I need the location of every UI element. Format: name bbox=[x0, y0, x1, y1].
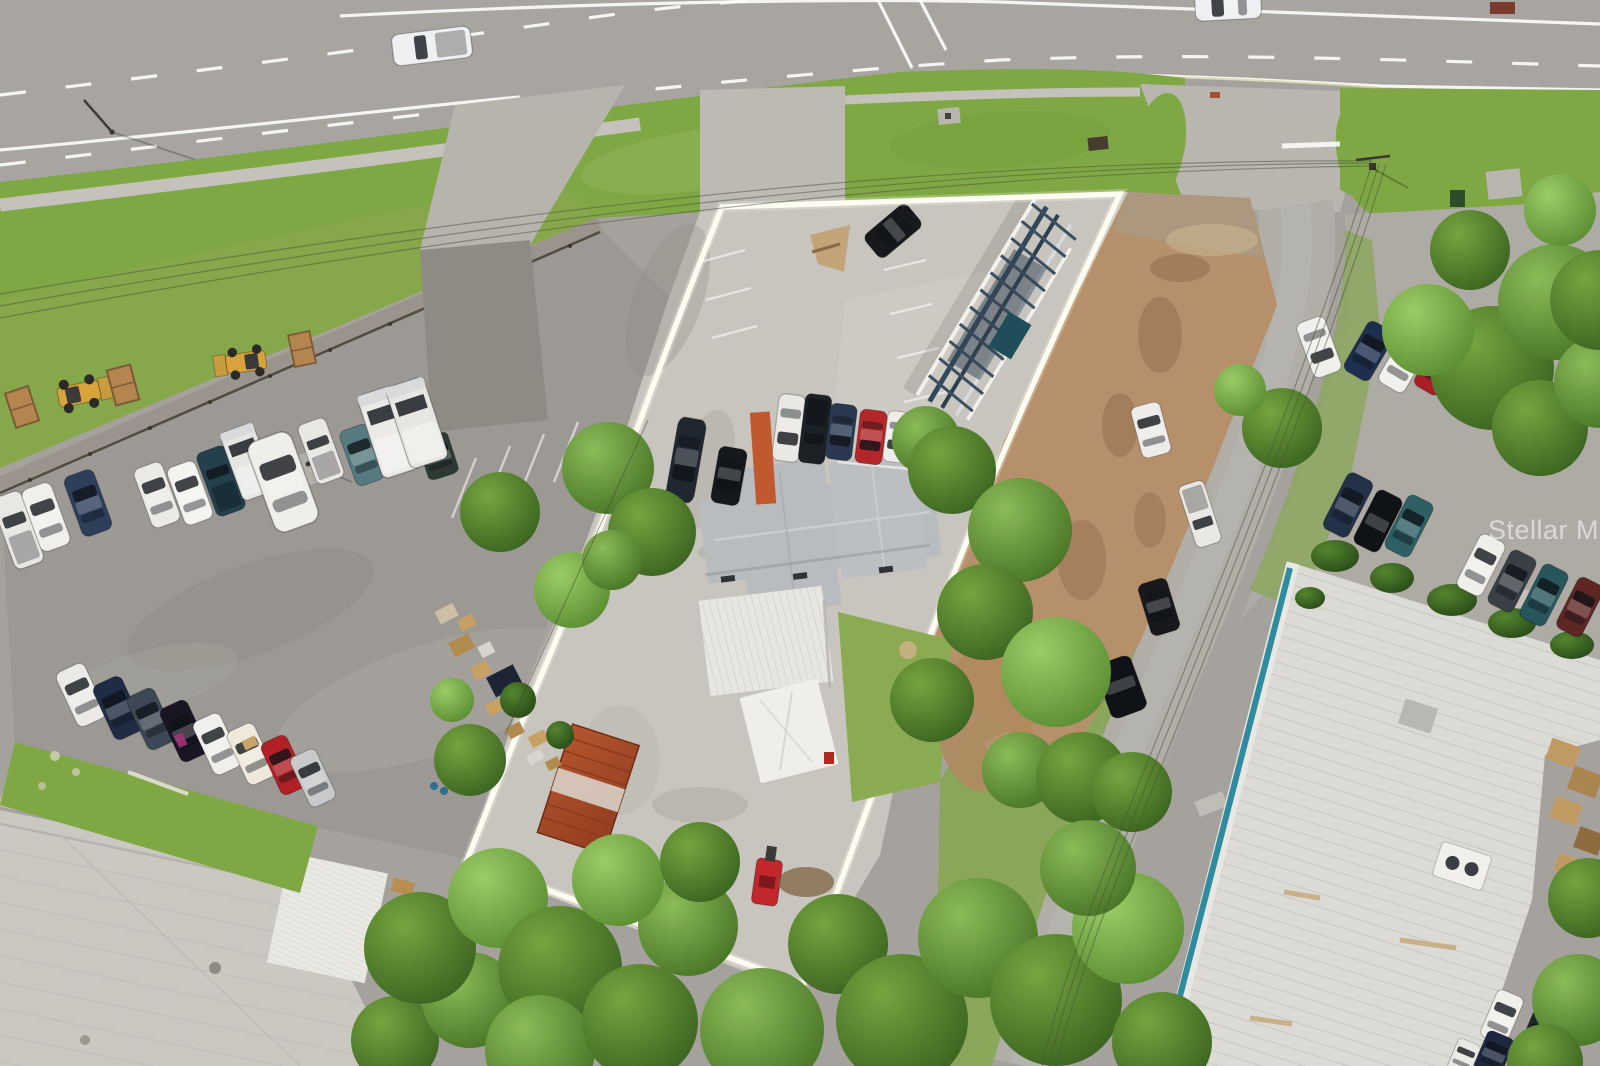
barrel bbox=[440, 787, 448, 795]
car-on-road bbox=[1194, 0, 1262, 21]
curb-mark bbox=[1210, 92, 1220, 98]
concrete-pad bbox=[1486, 168, 1523, 199]
barrel bbox=[430, 782, 438, 790]
transformer-box bbox=[1087, 136, 1108, 151]
utility-box bbox=[1450, 190, 1465, 207]
road-object bbox=[1490, 2, 1515, 14]
roof-vent bbox=[80, 1035, 90, 1045]
watermark: Stellar MLS bbox=[1488, 515, 1600, 546]
aerial-photo: Stellar MLS bbox=[0, 0, 1600, 1066]
utility-pole bbox=[937, 107, 961, 125]
red-equipment bbox=[824, 752, 834, 764]
asphalt-driveway bbox=[420, 240, 548, 432]
debris bbox=[778, 867, 834, 897]
roof-vent bbox=[209, 962, 221, 974]
